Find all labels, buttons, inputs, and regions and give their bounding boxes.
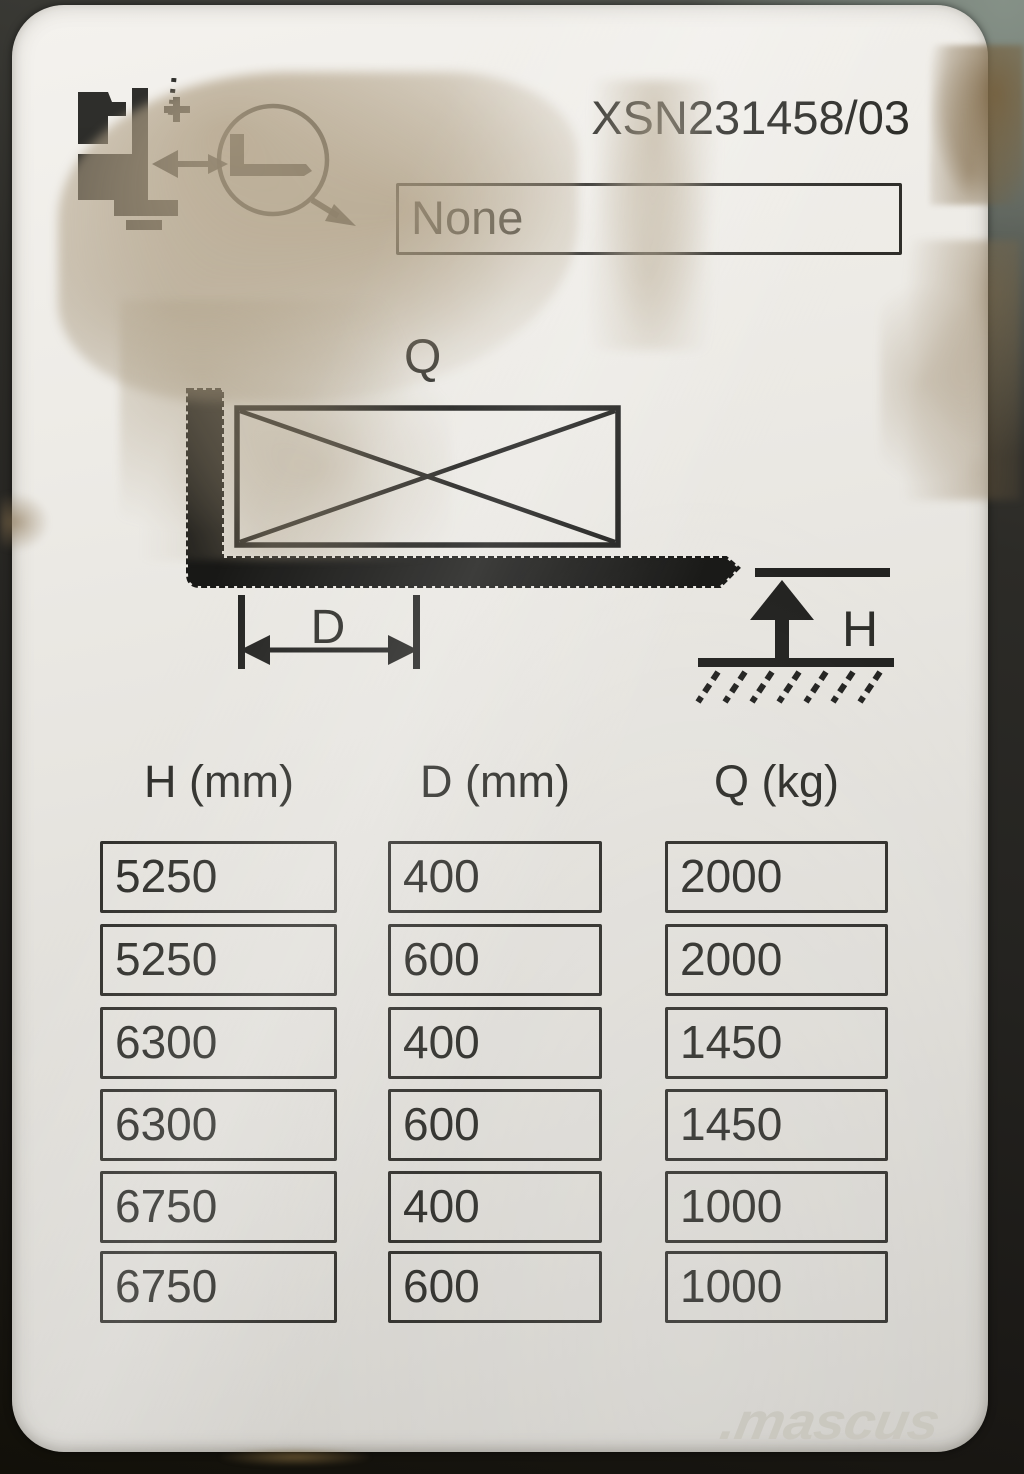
ground-line [698, 658, 894, 702]
table-cell: 1000 [665, 1251, 888, 1323]
column-header-q: Q (kg) [665, 756, 888, 808]
column-header-h: H (mm) [100, 756, 338, 808]
load-diagram: D H [170, 380, 910, 715]
attachment-field-box: None [396, 183, 902, 255]
column-header-d: D (mm) [388, 756, 602, 808]
left-arrow-icon [152, 78, 228, 178]
photo-of-capacity-plate: XSN231458/03 None Q D [0, 0, 1024, 1474]
table-cell: 400 [388, 1007, 602, 1079]
table-cell: 400 [388, 841, 602, 913]
table-cell: 5250 [100, 924, 337, 996]
attachment-field-value: None [399, 186, 899, 250]
table-cell: 400 [388, 1171, 602, 1243]
table-cell: 600 [388, 1251, 602, 1323]
table-cell: 2000 [665, 841, 888, 913]
load-q-label: Q [404, 330, 441, 385]
table-cell: 5250 [100, 841, 337, 913]
lift-height-h-label: H [842, 601, 878, 657]
table-cell: 1000 [665, 1171, 888, 1243]
load-box-icon [237, 408, 618, 545]
load-center-magnifier-icon [219, 106, 356, 226]
table-cell: 1450 [665, 1089, 888, 1161]
table-cell: 2000 [665, 924, 888, 996]
table-cell: 6750 [100, 1251, 337, 1323]
table-cell: 1450 [665, 1007, 888, 1079]
table-cell: 600 [388, 1089, 602, 1161]
load-center-pictogram [70, 78, 370, 238]
table-cell: 6300 [100, 1007, 337, 1079]
table-cell: 600 [388, 924, 602, 996]
mascus-watermark: .mascus [716, 1391, 944, 1451]
table-cell: 6750 [100, 1171, 337, 1243]
table-cell: 6300 [100, 1089, 337, 1161]
load-center-d-label: D [311, 601, 346, 654]
serial-number: XSN231458/03 [540, 90, 910, 148]
